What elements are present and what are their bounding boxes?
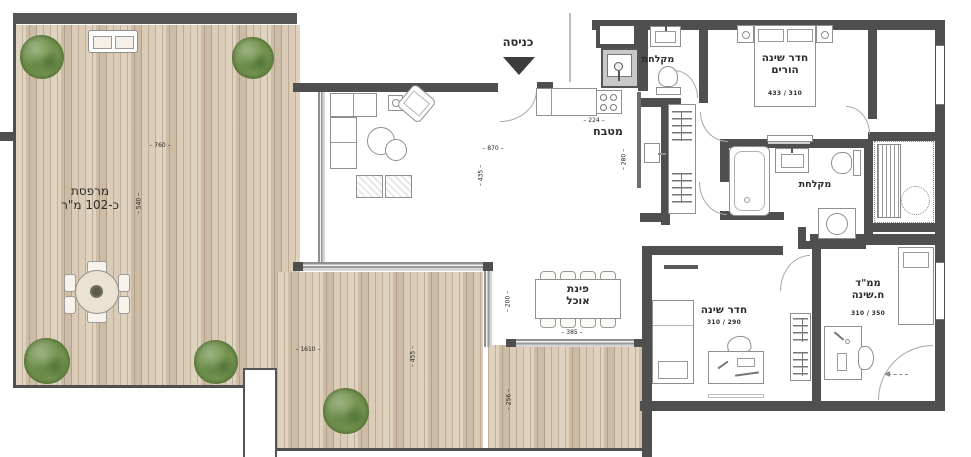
nightstand — [816, 25, 833, 43]
lamp-icon — [821, 31, 829, 39]
window-living-west — [318, 92, 325, 265]
wall-cap — [483, 262, 493, 271]
mamad-name-1: ממ"ד — [838, 278, 898, 290]
dining-chair — [540, 318, 556, 328]
dim-deck-height: 455 — [410, 342, 417, 372]
guest-sink-basin — [655, 31, 676, 43]
wall-hall-stub — [640, 213, 666, 222]
dim-kitchen-width: 224 — [580, 117, 608, 124]
entrance-label: כניסה — [494, 36, 542, 49]
mamad-name-2: ח.שינה — [838, 290, 898, 302]
bedroom2-wardrobe — [790, 313, 811, 381]
bath-sink-basin — [781, 154, 804, 168]
outdoor-chair — [118, 296, 130, 314]
wall-living-north — [293, 83, 498, 92]
faucet-icon — [614, 62, 623, 71]
bedroom2-size: 310 / 290 — [696, 319, 752, 326]
bedroom2-label: חדר שינה — [692, 304, 756, 316]
dining-chair — [600, 318, 616, 328]
faucet-stem — [618, 71, 620, 81]
entrance-door-arc — [500, 90, 537, 122]
closet-shelves — [672, 111, 692, 141]
bath-door-arc — [699, 182, 727, 215]
tree — [20, 35, 64, 79]
terrace-parapet-top — [13, 13, 297, 24]
bedroom2-shelf — [664, 265, 698, 269]
bedroom2-threshold — [708, 394, 764, 398]
wall-bedroom2-north — [642, 246, 783, 255]
guest-faucet-icon — [665, 24, 667, 31]
mamad-door-arrowhead — [884, 371, 890, 377]
bath-faucet-icon — [791, 145, 793, 153]
entrance-arrow-icon — [503, 57, 535, 75]
tree — [194, 340, 238, 384]
wall-balcony-south — [868, 223, 945, 232]
mamad-label: ממ"ד ח.שינה — [838, 278, 898, 301]
ac-unit-dashed — [901, 186, 930, 215]
sofa-left — [330, 117, 357, 169]
dim-dining-side: 200 — [505, 287, 512, 317]
bench-cushion — [93, 36, 112, 49]
dim-dining-width: 385 — [552, 329, 592, 336]
tub-inner — [734, 151, 765, 211]
armchair-seat-line — [403, 90, 430, 117]
wall-balcony-north — [868, 132, 945, 141]
dim-deck-width: 1610 — [286, 346, 330, 353]
burner-icon — [610, 94, 617, 101]
window-dining-south — [516, 339, 634, 347]
bed-line — [653, 325, 693, 326]
bed-pillow — [758, 29, 784, 42]
wall-left-stub — [0, 132, 13, 141]
window-living-south — [303, 262, 483, 271]
table-centerpiece — [90, 285, 103, 298]
louver-panel — [877, 144, 901, 218]
dining-label: פינת אוכל — [548, 283, 608, 307]
counter-divider — [551, 89, 552, 115]
wall-master-west — [699, 23, 708, 103]
wall-bedroom2-west — [642, 246, 652, 457]
master-name-2: הורים — [748, 64, 822, 76]
dim-deck-height2: 256 — [506, 385, 513, 415]
window-mamad-east — [936, 262, 944, 320]
mamad-bed — [898, 247, 934, 325]
mamad-door-arrow — [888, 374, 908, 375]
outdoor-chair — [64, 296, 76, 314]
wall-bottom — [640, 401, 945, 411]
guest-shower-label: מקלחת — [638, 55, 678, 66]
desk-item-paper — [837, 353, 847, 371]
wall-dressing-west — [868, 23, 877, 119]
terrace-rail-left — [13, 24, 16, 388]
washing-machine — [818, 208, 856, 239]
outdoor-chair — [118, 274, 130, 292]
corridor-closet — [668, 104, 696, 214]
window-dining-west — [484, 271, 492, 347]
terrace-name: מרפסת — [35, 185, 145, 199]
accent-chair — [385, 175, 412, 198]
terrace-rail-bottom-right — [277, 448, 645, 451]
bed-pillow — [903, 252, 929, 268]
dim-terrace-height: 540 — [136, 189, 143, 219]
tub-drain — [744, 197, 750, 203]
terrace-area: כ-102 מ"ר — [35, 199, 145, 213]
tree — [232, 37, 274, 79]
window-master-east — [936, 45, 944, 105]
bedroom2-bed — [652, 300, 694, 384]
kitchen-label: מטבח — [586, 126, 630, 139]
guest-shower-door-arc — [674, 70, 698, 98]
desk-item-board — [737, 358, 755, 367]
master-shower-label: מקלחת — [795, 180, 835, 191]
bedroom2-door-arc — [780, 255, 810, 291]
mamad-chair — [858, 346, 874, 370]
guest-sink — [650, 26, 681, 47]
wall-cap — [293, 262, 303, 271]
desk-item-dot — [845, 339, 850, 344]
master-label: חדר שינה הורים — [748, 52, 822, 76]
dim-living-width: 870 — [478, 145, 508, 152]
desk-item-keyboard — [735, 371, 759, 376]
sofa-cushion-line — [331, 142, 356, 143]
floor-plan: מרפסת כ-102 מ"ר 760 540 1610 455 256 200 — [0, 0, 971, 457]
bed-end-bench — [767, 135, 813, 142]
bath-toilet — [831, 150, 862, 177]
wardrobe-shelves — [793, 352, 808, 376]
walkway-rail — [569, 13, 571, 82]
bath-sink — [775, 148, 809, 173]
nightstand — [737, 25, 754, 43]
dining-chair — [560, 318, 576, 328]
terrace-notch — [243, 368, 277, 457]
stove — [596, 90, 622, 114]
sofa-cushion-line — [353, 94, 354, 116]
bed-pillow — [787, 29, 813, 42]
washer-drum-icon — [826, 213, 848, 235]
tree — [24, 338, 70, 384]
master-size: 433 / 310 — [757, 90, 813, 97]
dressing-door-arc — [846, 106, 870, 134]
wardrobe-shelves — [793, 318, 808, 342]
kitchen-sink-unit — [601, 48, 639, 88]
terrace-label: מרפסת כ-102 מ"ר — [35, 185, 145, 213]
fridge-niche — [644, 143, 660, 163]
wall-bath-west-a — [720, 139, 729, 182]
burner-icon — [600, 94, 607, 101]
kitchen-counter — [536, 88, 597, 116]
toilet-bowl — [831, 152, 852, 174]
mamad-desk — [824, 326, 862, 380]
terrace-rail-bottom-left — [13, 385, 245, 388]
master-door-arc — [700, 112, 728, 142]
tree — [323, 388, 369, 434]
bench-cushion — [115, 36, 134, 49]
desk-item-lamp — [834, 331, 844, 340]
lamp-icon — [742, 31, 750, 39]
dim-terrace-width: 760 — [140, 142, 180, 149]
accent-chair — [356, 175, 383, 198]
bed-pillow — [658, 361, 688, 379]
closet-shelves — [672, 173, 692, 203]
shaft-box — [596, 22, 638, 48]
dining-chair — [580, 318, 596, 328]
towel-bar — [768, 142, 810, 144]
mamad-size: 310 / 350 — [840, 310, 896, 317]
dining-name-1: פינת — [548, 283, 608, 295]
burner-icon — [610, 104, 617, 111]
dim-living-height: 435 — [478, 161, 485, 191]
desk-item-pen — [718, 361, 729, 370]
master-name-1: חדר שינה — [748, 52, 822, 64]
dining-name-2: אוכל — [548, 295, 608, 307]
terrace-deck-lower-left — [277, 272, 483, 450]
burner-icon — [600, 104, 607, 111]
sofa-top — [330, 93, 377, 117]
wall-mamad-west — [812, 234, 821, 406]
wall-cap — [506, 339, 516, 347]
dim-kitchen-height: 280 — [621, 145, 628, 175]
coffee-table-small — [385, 139, 407, 161]
toilet-tank — [853, 150, 861, 176]
niche-handle — [658, 153, 666, 155]
bathtub — [729, 146, 770, 216]
outdoor-bench — [88, 30, 138, 53]
bedroom2-desk — [708, 351, 764, 384]
